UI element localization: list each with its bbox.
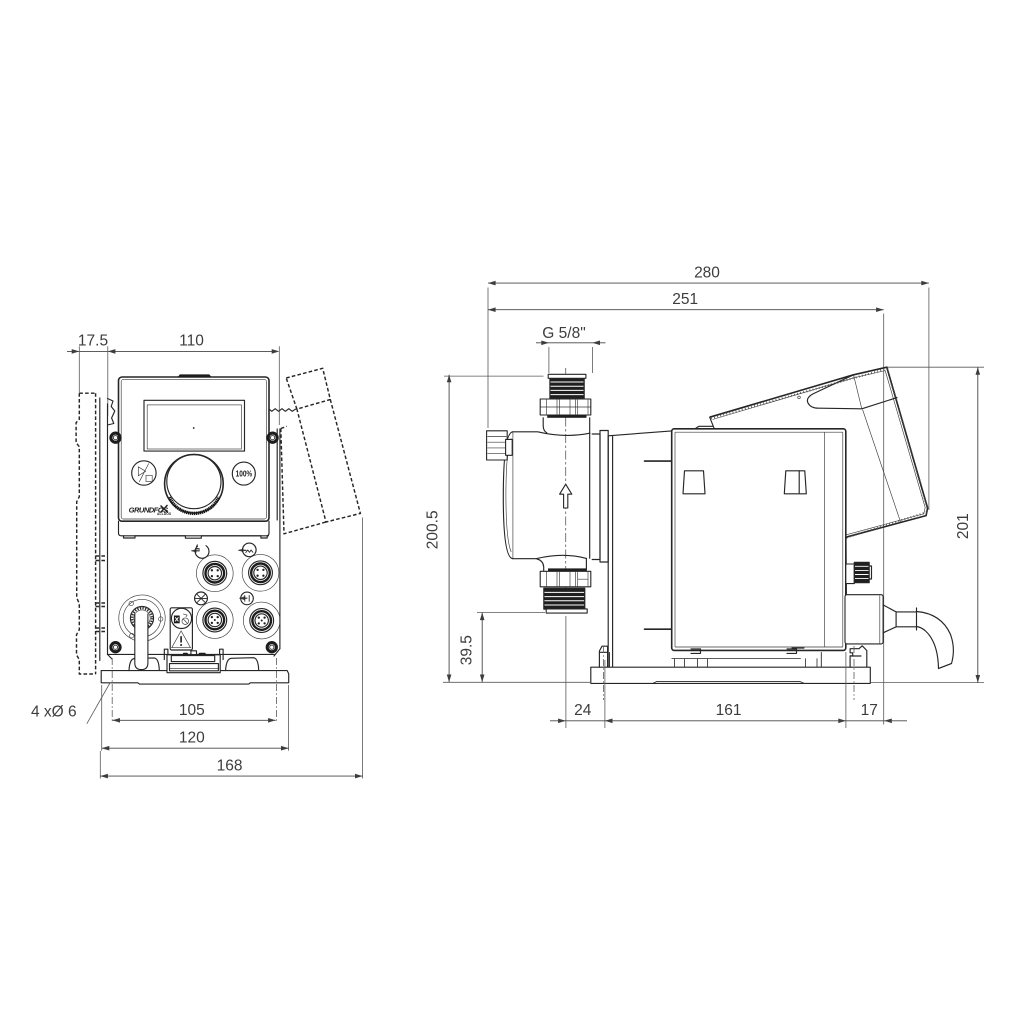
svg-text:251: 251 xyxy=(672,291,698,308)
svg-text:200.5: 200.5 xyxy=(424,510,441,549)
svg-text:17.5: 17.5 xyxy=(78,333,108,350)
svg-text:G 5/8": G 5/8" xyxy=(542,325,585,342)
svg-text:161: 161 xyxy=(716,702,742,719)
svg-text:24: 24 xyxy=(574,702,592,719)
svg-text:105: 105 xyxy=(179,702,205,719)
svg-text:201: 201 xyxy=(955,513,972,539)
svg-text:280: 280 xyxy=(694,265,720,282)
svg-text:100%: 100% xyxy=(236,469,253,479)
svg-text:168: 168 xyxy=(217,758,243,775)
svg-text:4 xØ 6: 4 xØ 6 xyxy=(31,703,77,720)
svg-text:110: 110 xyxy=(179,333,204,350)
svg-text:120: 120 xyxy=(179,730,205,747)
svg-text:39.5: 39.5 xyxy=(459,635,476,665)
svg-text:17: 17 xyxy=(861,702,878,719)
svg-text:ALLDOS: ALLDOS xyxy=(157,512,172,516)
